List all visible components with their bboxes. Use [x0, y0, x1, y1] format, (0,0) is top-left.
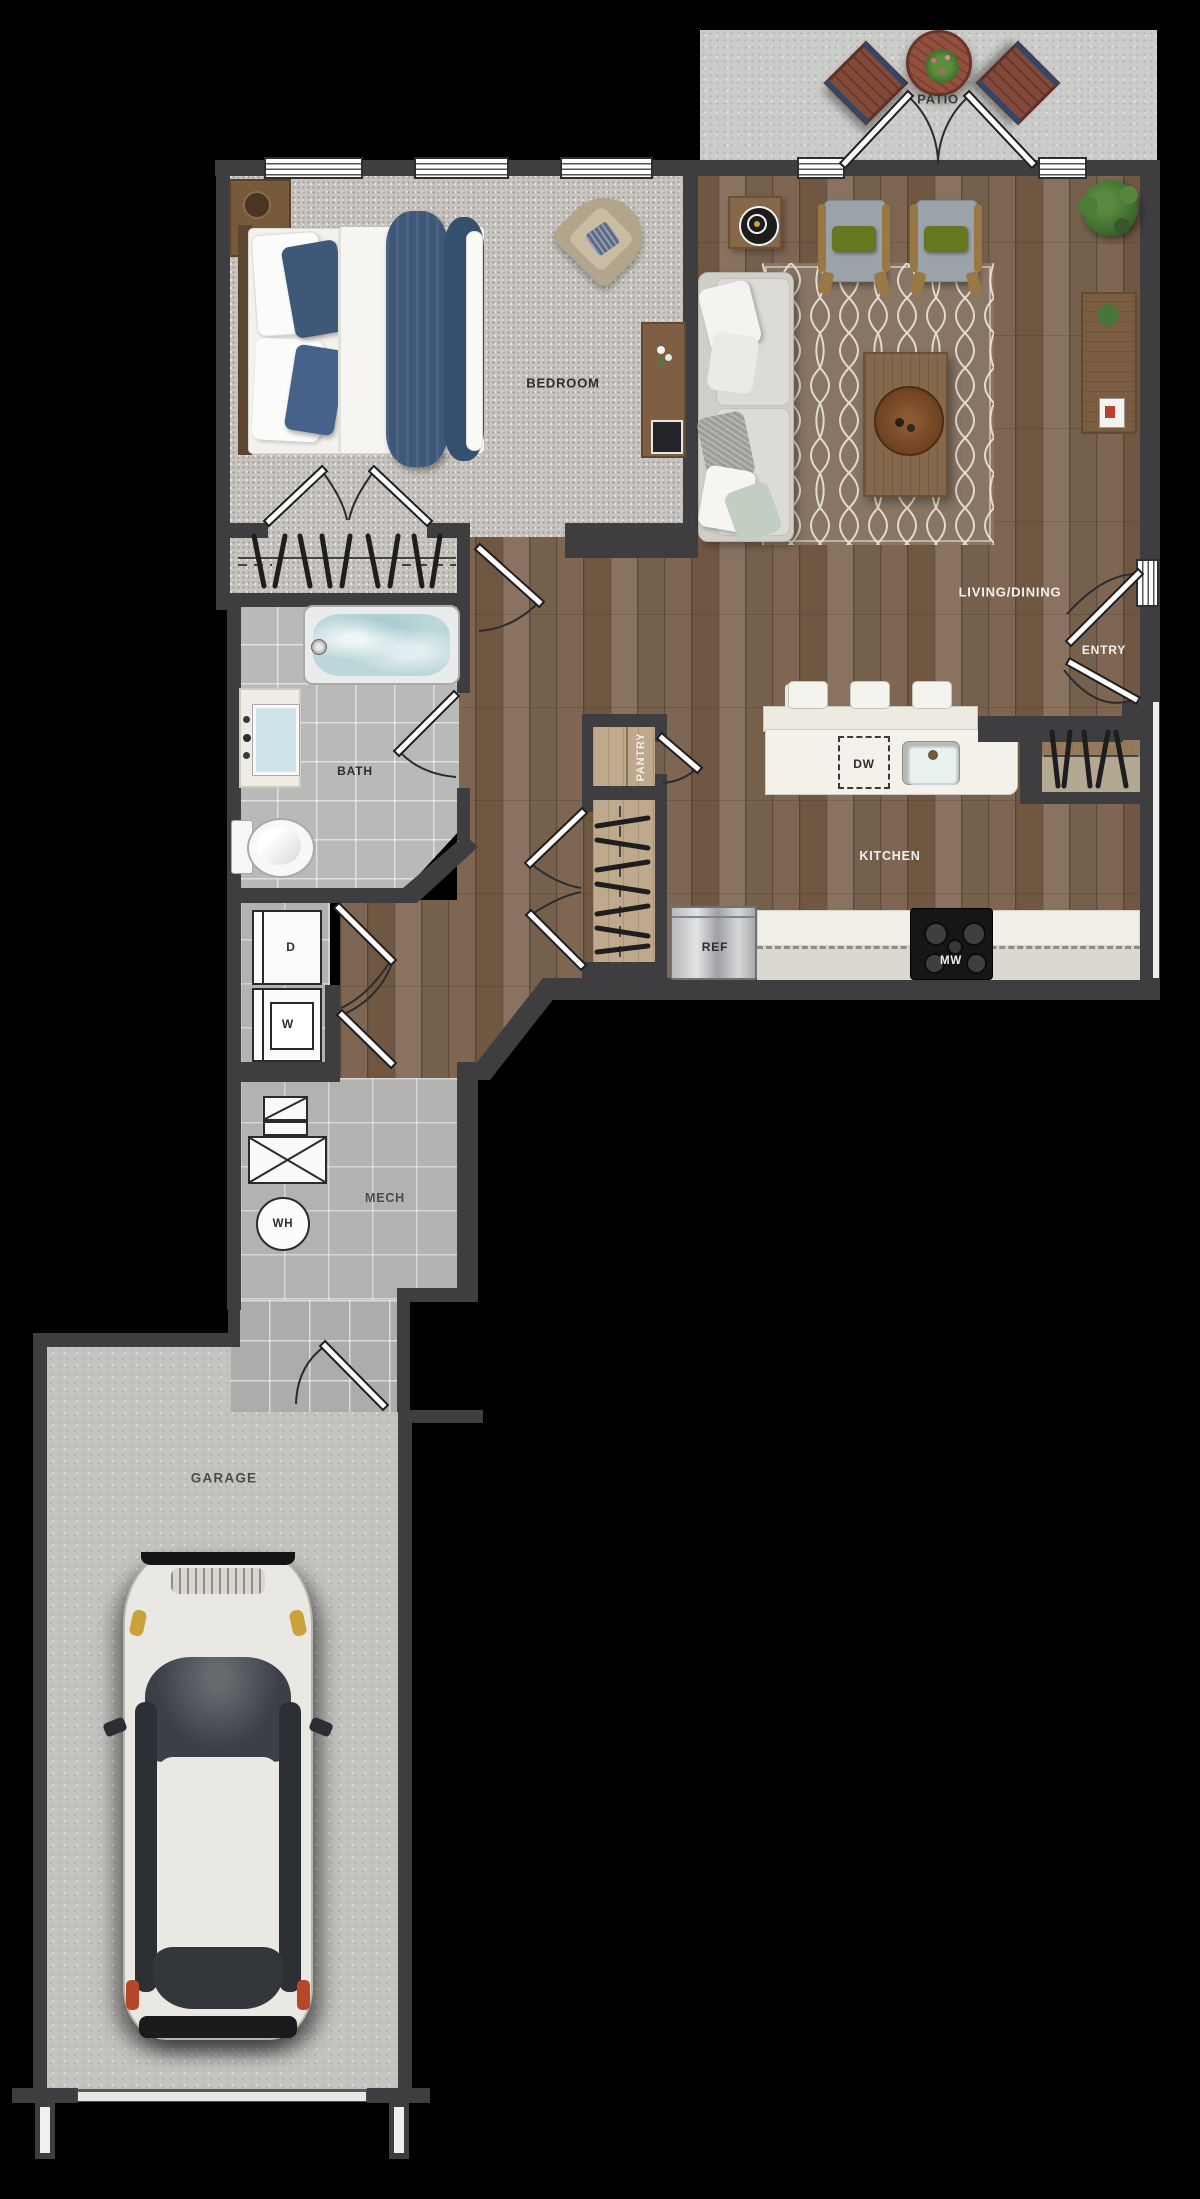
- bath-vanity: [239, 688, 301, 788]
- patio-door-jamb-left: [797, 157, 845, 179]
- car-rear-window: [153, 1947, 283, 2009]
- entry-sidelight-window: [1136, 559, 1159, 607]
- wall-entry-corner: [1122, 702, 1152, 740]
- wall-garage-right-stub: [398, 1410, 483, 1423]
- garage-pillar-left-inner: [40, 2107, 50, 2153]
- garage-pillar-right-bar: [367, 2088, 430, 2103]
- vestibule-floor: [229, 1300, 398, 1413]
- wall-vestibule-right: [397, 1300, 410, 1412]
- coffee-table: [863, 352, 948, 497]
- wall-entry-closet-bottom: [1020, 792, 1152, 804]
- washer-label: W: [282, 1017, 294, 1031]
- bedroom-window: [414, 157, 509, 179]
- wall-garage-top: [33, 1333, 240, 1347]
- garage-pillar-right-inner: [394, 2107, 404, 2153]
- wall-pantry-right-stub-a: [655, 714, 667, 742]
- dryer-label: D: [286, 940, 295, 954]
- burner: [924, 922, 948, 946]
- bedroom-window: [560, 157, 653, 179]
- wall-garage-right: [398, 1410, 412, 2092]
- wall-garage-left: [33, 1333, 47, 2093]
- mech-unit-furnace: [248, 1136, 327, 1184]
- car-hood-vent: [171, 1568, 265, 1594]
- sofa: [698, 272, 792, 540]
- bed: [238, 225, 483, 455]
- burner: [947, 939, 963, 955]
- living-armchair: [818, 200, 890, 288]
- dishwasher-label: DW: [853, 757, 875, 771]
- vanity-faucet-icon: [243, 734, 251, 742]
- wall-bath-right-lower: [457, 788, 470, 840]
- bathtub: [303, 605, 460, 685]
- wall-wardrobe-bottom: [582, 962, 667, 992]
- patio-label: PATIO: [917, 92, 959, 107]
- record-player-table: [728, 196, 782, 249]
- console-table: [1081, 292, 1137, 434]
- burner: [962, 922, 986, 946]
- bath-label: BATH: [337, 764, 373, 778]
- car-taillight: [297, 1980, 310, 2010]
- wall-wardrobe-left-stub: [582, 800, 593, 812]
- wall-mech-top: [227, 1062, 340, 1082]
- wall-bedroom-hall: [565, 523, 698, 558]
- living-dining-label: LIVING/DINING: [959, 585, 1062, 600]
- wardrobe-floor: [593, 800, 655, 968]
- floor-plan-canvas: PATIO BEDROOM LIVING/DINING ENTRY BATH P…: [0, 0, 1200, 2199]
- stove: [910, 908, 993, 980]
- tub-faucet-icon: [311, 639, 327, 655]
- pantry-shelf-line: [626, 727, 628, 787]
- car-rear-bumper: [139, 2016, 297, 2038]
- bed-navy-blanket: [386, 211, 448, 467]
- water-heater-label: WH: [273, 1218, 294, 1230]
- bedroom-desk: [641, 322, 686, 458]
- wall-closet-stub-left: [230, 523, 268, 538]
- wall-wardrobe-right: [655, 800, 667, 968]
- vanity-faucet-icon: [243, 716, 250, 723]
- wall-bath-bottom: [227, 888, 417, 903]
- wall-entry-closet-left: [1020, 723, 1042, 803]
- mech-unit-small: [263, 1096, 308, 1121]
- pantry-label: PANTRY: [635, 733, 647, 782]
- garage-label: GARAGE: [191, 1471, 257, 1486]
- living-armchair: [910, 200, 982, 288]
- car-front-trim: [141, 1552, 295, 1565]
- mech-label: MECH: [365, 1191, 405, 1205]
- toilet-bowl: [247, 818, 315, 878]
- microwave-label: MW: [940, 955, 962, 967]
- wall-vestibule-connector: [397, 1288, 478, 1302]
- kitchen-label: KITCHEN: [859, 849, 920, 863]
- wall-pantry-right-stub-b: [655, 774, 667, 800]
- garage-door: [77, 2089, 367, 2102]
- wall-bedroom-left: [216, 160, 230, 610]
- toilet: [231, 818, 313, 876]
- bar-stool: [788, 681, 828, 709]
- patio-table: [906, 30, 972, 96]
- car-side-window: [279, 1702, 301, 1992]
- bar-stool: [912, 681, 952, 709]
- car-side-window: [135, 1702, 157, 1992]
- vanity-sink: [253, 705, 299, 775]
- bar-stool: [850, 681, 890, 709]
- car-roof: [157, 1757, 279, 1952]
- bed-foot-fold: [466, 231, 483, 451]
- car-windshield: [145, 1657, 291, 1762]
- wall-right-exterior-trim: [1153, 702, 1159, 998]
- vanity-faucet-icon: [243, 752, 250, 759]
- patio-plant: [925, 49, 959, 83]
- garage-pillar-left-bar: [12, 2088, 78, 2103]
- refrigerator-label: REF: [702, 940, 728, 954]
- potted-plant: [1078, 176, 1142, 240]
- car-taillight: [126, 1980, 139, 2010]
- wall-entry-closet-top: [978, 716, 1123, 742]
- kitchen-sink: [902, 741, 960, 785]
- entry-closet-shelf: [1042, 755, 1140, 794]
- sofa-pillow: [706, 331, 760, 395]
- bedroom-window: [264, 157, 363, 179]
- bedroom-label: BEDROOM: [526, 376, 600, 391]
- burner: [966, 953, 987, 974]
- sink-faucet-icon: [928, 750, 938, 760]
- mech-unit-mid: [263, 1121, 308, 1136]
- entry-label: ENTRY: [1082, 643, 1126, 657]
- car: [123, 1552, 313, 2040]
- wall-laundry-right: [325, 985, 340, 1068]
- wall-mech-right: [457, 1062, 478, 1302]
